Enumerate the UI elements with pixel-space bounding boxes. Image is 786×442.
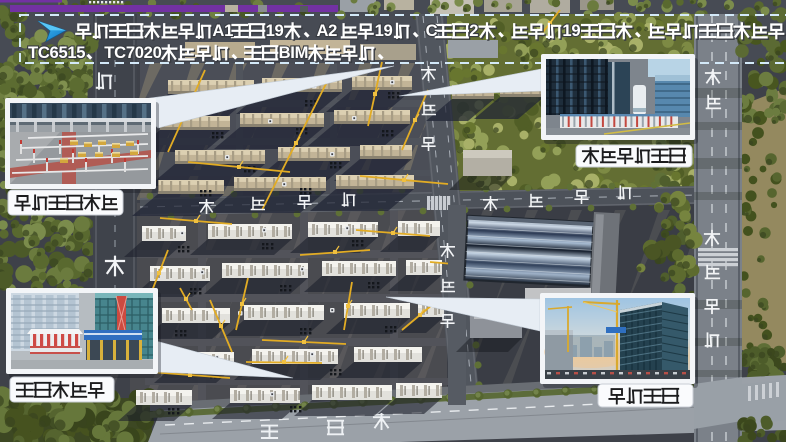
svg-text:A1: A1 bbox=[212, 21, 233, 40]
svg-text:19: 19 bbox=[562, 21, 580, 40]
svg-text:19: 19 bbox=[266, 21, 284, 40]
svg-text:TC6515: TC6515 bbox=[28, 43, 85, 62]
svg-text:A2: A2 bbox=[317, 21, 338, 40]
svg-text:19: 19 bbox=[375, 21, 393, 40]
svg-text:C: C bbox=[426, 21, 438, 40]
svg-text:BIM: BIM bbox=[279, 43, 309, 62]
svg-text:TC7020: TC7020 bbox=[104, 43, 161, 62]
svg-text:2: 2 bbox=[469, 21, 478, 40]
